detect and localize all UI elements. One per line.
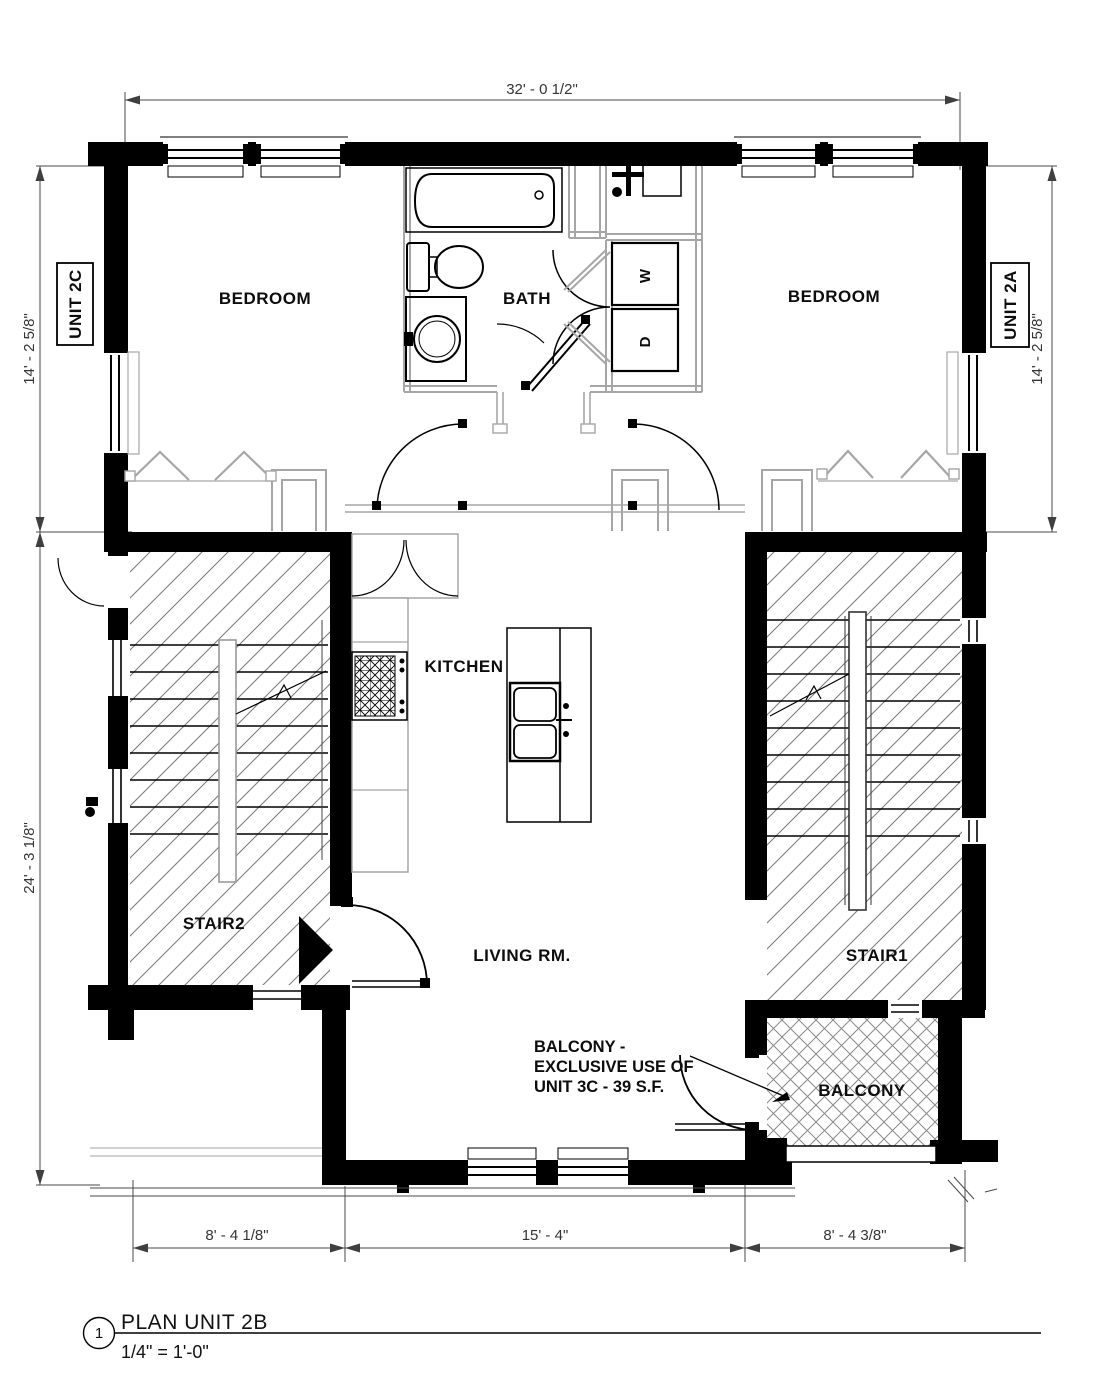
toilet <box>407 243 483 291</box>
vanity-sink <box>404 297 466 381</box>
balcony-note-line2: EXCLUSIVE USE OF <box>534 1058 694 1076</box>
washer: W <box>612 243 678 305</box>
room-label-stair1: STAIR1 <box>846 946 908 965</box>
room-label-stair2: STAIR2 <box>183 914 245 933</box>
dim-bottom-center: 15' - 4" <box>522 1227 569 1244</box>
kitchen-island <box>507 628 591 822</box>
plan-title: PLAN UNIT 2B <box>121 1311 268 1334</box>
room-label-bedroom-left: BEDROOM <box>219 289 311 308</box>
unit-tag-2c: UNIT 2C <box>66 269 85 339</box>
room-label-bath: BATH <box>503 289 551 308</box>
title-block: 1 PLAN UNIT 2B 1/4" = 1'-0" <box>84 1311 1042 1362</box>
balcony-note-line3: UNIT 3C - 39 S.F. <box>534 1078 664 1096</box>
room-label-bedroom-right: BEDROOM <box>788 287 880 306</box>
closet-bifold-doors <box>125 451 959 481</box>
washer-label: W <box>637 268 654 283</box>
dryer-label: D <box>637 336 654 347</box>
room-label-living: LIVING RM. <box>473 946 571 965</box>
balcony-note-line1: BALCONY - <box>534 1038 625 1056</box>
shower-faucet <box>612 164 681 197</box>
balcony-rail <box>786 1146 936 1162</box>
plan-scale: 1/4" = 1'-0" <box>121 1342 209 1362</box>
dim-top: 32' - 0 1/2" <box>506 81 578 98</box>
floor-plan-sheet: 32' - 0 1/2" 14' - 2 5/8" 24' - 3 1/8" 1… <box>0 0 1099 1392</box>
bathtub <box>406 168 562 232</box>
dim-right-upper: 14' - 2 5/8" <box>1029 313 1046 385</box>
dryer: D <box>612 309 678 371</box>
room-label-kitchen: KITCHEN <box>424 657 503 676</box>
dim-left-upper: 14' - 2 5/8" <box>21 313 38 385</box>
dim-left-lower: 24' - 3 1/8" <box>21 822 38 894</box>
floor-plan-svg: 32' - 0 1/2" 14' - 2 5/8" 24' - 3 1/8" 1… <box>0 0 1099 1392</box>
dim-bottom-right: 8' - 4 3/8" <box>823 1227 886 1244</box>
unit-tag-2a: UNIT 2A <box>1001 270 1020 340</box>
dim-bottom-left: 8' - 4 1/8" <box>205 1227 268 1244</box>
room-label-balcony: BALCONY <box>818 1081 906 1100</box>
detail-number: 1 <box>95 1325 103 1342</box>
